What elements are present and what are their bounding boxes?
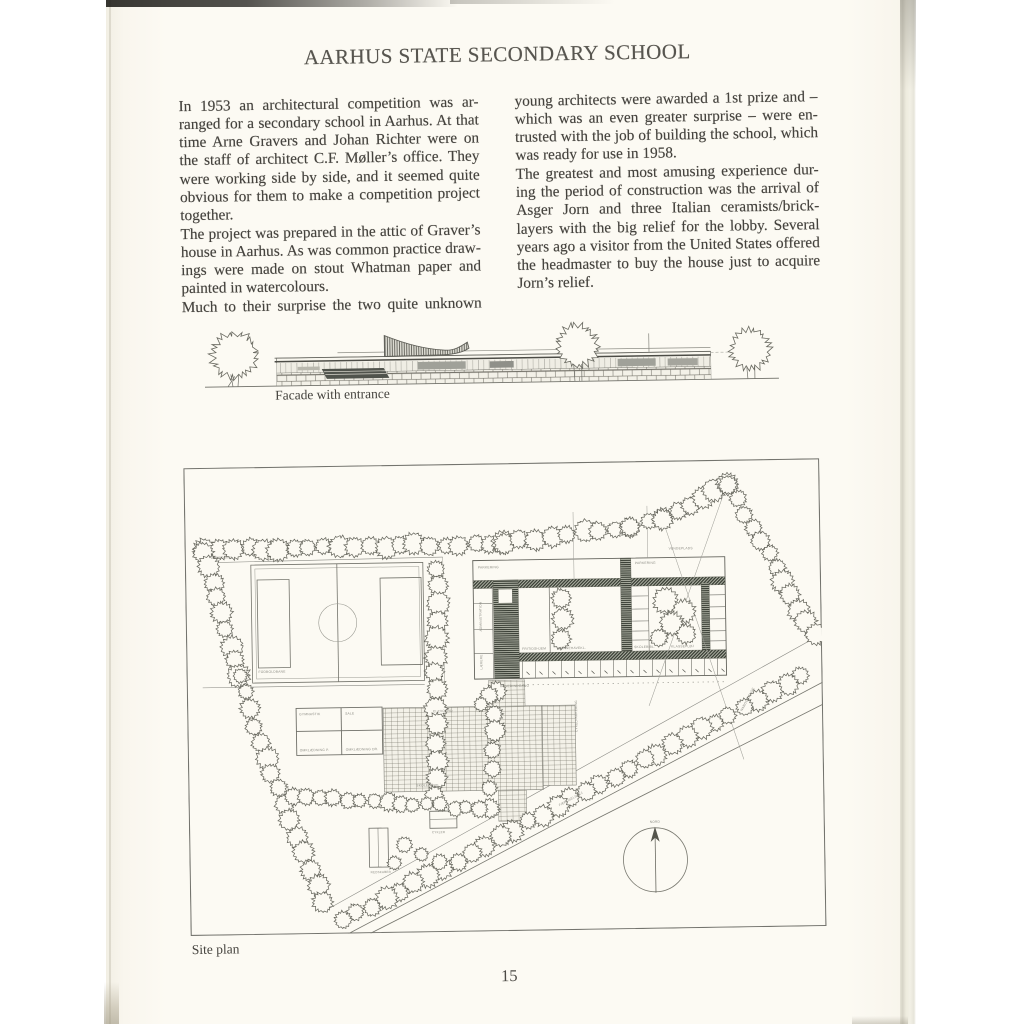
svg-text:HOVEDINDGANG: HOVEDINDGANG xyxy=(500,684,530,688)
svg-text:NORD: NORD xyxy=(650,820,661,824)
svg-text:PARKERING: PARKERING xyxy=(478,565,499,569)
svg-text:PARKERING: PARKERING xyxy=(635,561,656,565)
svg-text:CYKELPARKERING: CYKELPARKERING xyxy=(574,700,579,732)
svg-text:GRUNDSKEL: GRUNDSKEL xyxy=(211,555,233,559)
svg-text:LÆRERE: LÆRERE xyxy=(479,654,483,669)
svg-text:BØRNEHAVEKL.: BØRNEHAVEKL. xyxy=(558,646,586,650)
svg-text:OMKLÆDNING DR.: OMKLÆDNING DR. xyxy=(346,747,379,752)
svg-text:KLASSEFLØJ: KLASSEFLØJ xyxy=(671,644,694,648)
svg-text:ADMINISTRATION: ADMINISTRATION xyxy=(478,601,482,631)
svg-text:FRITIDSHJEM: FRITIDSHJEM xyxy=(522,646,546,650)
svg-text:OMKLÆDNING P.: OMKLÆDNING P. xyxy=(300,748,330,752)
svg-text:REDSKABER: REDSKABER xyxy=(371,870,392,874)
svg-text:CYKLER: CYKLER xyxy=(432,830,446,834)
svg-text:SALE: SALE xyxy=(345,711,355,715)
svg-text:ELEVGÅRD: ELEVGÅRD xyxy=(433,708,453,713)
svg-text:SKOLEBIBL.: SKOLEBIBL. xyxy=(634,645,655,649)
svg-text:FODBOLDBANE: FODBOLDBANE xyxy=(258,670,286,674)
svg-text:GYMNASTIK: GYMNASTIK xyxy=(299,712,321,716)
svg-text:SKOLEGÅRD: SKOLEGÅRD xyxy=(416,782,439,787)
svg-text:VENDEPLADS: VENDEPLADS xyxy=(669,546,694,550)
